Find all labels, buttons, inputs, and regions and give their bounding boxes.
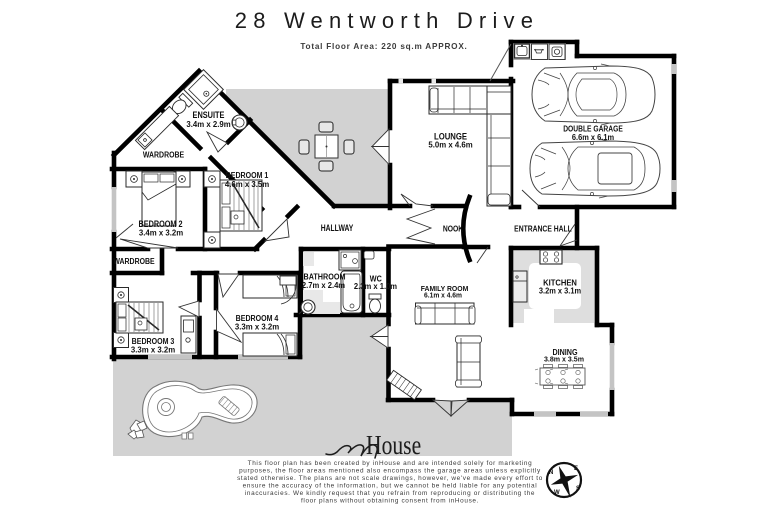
svg-text:floor plans without obtaining: floor plans without obtaining consent fr…: [301, 498, 479, 505]
svg-text:BEDROOM 1: BEDROOM 1: [226, 170, 269, 180]
svg-text:ENSUITE: ENSUITE: [193, 110, 225, 120]
svg-text:Total Floor Area: 220 sq.m APP: Total Floor Area: 220 sq.m APPROX.: [300, 42, 467, 51]
svg-text:HALLWAY: HALLWAY: [321, 223, 354, 233]
svg-text:W: W: [554, 490, 560, 496]
svg-text:3.4m x 3.2m: 3.4m x 3.2m: [139, 228, 183, 237]
svg-text:5.0m x 4.6m: 5.0m x 4.6m: [428, 140, 472, 149]
svg-text:WARDROBE: WARDROBE: [113, 257, 154, 267]
svg-text:NOOK: NOOK: [443, 224, 464, 234]
svg-text:3.8m x 3.5m: 3.8m x 3.5m: [544, 354, 584, 363]
svg-text:House: House: [366, 431, 421, 461]
svg-text:This floor plan has been creat: This floor plan has been created by inHo…: [248, 460, 533, 467]
svg-text:4.6m x 3.5m: 4.6m x 3.5m: [225, 180, 269, 189]
svg-text:S: S: [576, 486, 580, 492]
svg-text:WARDROBE: WARDROBE: [143, 150, 184, 160]
svg-text:3.2m x 3.1m: 3.2m x 3.1m: [539, 286, 581, 295]
svg-text:6.6m x 6.1m: 6.6m x 6.1m: [572, 133, 614, 142]
svg-text:2.7m x 2.4m: 2.7m x 2.4m: [302, 281, 345, 290]
svg-text:ensure the accuracy of the inf: ensure the accuracy of the information, …: [243, 483, 538, 490]
svg-text:28 Wentworth Drive: 28 Wentworth Drive: [235, 8, 539, 33]
svg-text:3.4m x 2.9m: 3.4m x 2.9m: [186, 120, 230, 129]
svg-text:3.3m x 3.2m: 3.3m x 3.2m: [131, 345, 175, 354]
svg-text:N: N: [549, 470, 553, 476]
svg-text:6.1m x 4.6m: 6.1m x 4.6m: [424, 292, 462, 299]
svg-text:ENTRANCE HALL: ENTRANCE HALL: [514, 224, 572, 234]
svg-text:E: E: [574, 466, 578, 472]
svg-text:stated otherwise. The plans ar: stated otherwise. The plans are not scal…: [237, 475, 543, 482]
svg-text:inaccuracies. We kindly reques: inaccuracies. We kindly request that you…: [245, 490, 535, 497]
svg-text:3.3m x 3.2m: 3.3m x 3.2m: [235, 322, 279, 331]
svg-text:2.3m x 1.0m: 2.3m x 1.0m: [354, 282, 397, 291]
svg-text:purposes, the floor areas ment: purposes, the floor areas mentioned also…: [239, 468, 541, 475]
